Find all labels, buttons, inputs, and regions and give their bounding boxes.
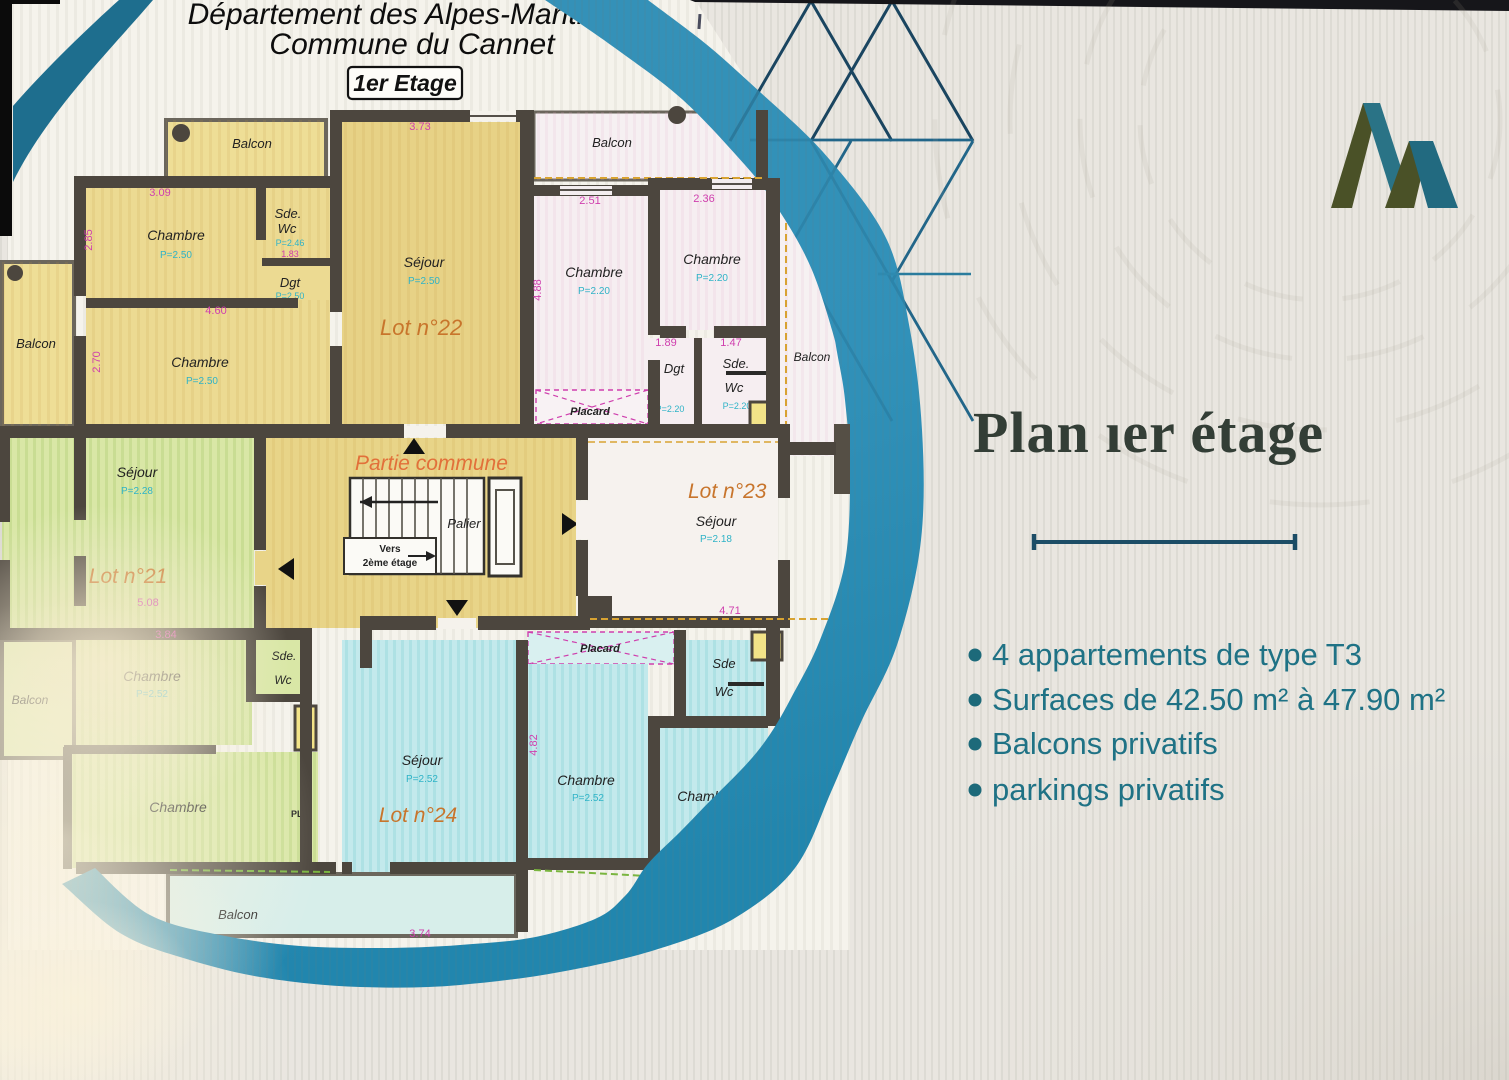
svg-text:Balcon: Balcon: [794, 350, 831, 364]
svg-text:Placard: Placard: [580, 643, 620, 655]
svg-text:Plan ıer étage: Plan ıer étage: [973, 400, 1324, 465]
svg-text:3.09: 3.09: [149, 187, 170, 199]
svg-text:Chambre: Chambre: [147, 227, 205, 243]
svg-text:Balcon: Balcon: [232, 136, 272, 151]
svg-text:P=2.46: P=2.46: [276, 238, 305, 248]
svg-text:Séjour: Séjour: [402, 752, 444, 768]
svg-text:Vers: Vers: [379, 544, 401, 555]
svg-text:P=2.50: P=2.50: [186, 376, 218, 387]
svg-text:P=2.20: P=2.20: [696, 273, 728, 284]
svg-text:Chambre: Chambre: [683, 251, 741, 267]
svg-text:P=2.20: P=2.20: [578, 286, 610, 297]
svg-text:1er Etage: 1er Etage: [353, 70, 457, 96]
svg-text:Dgt: Dgt: [280, 275, 302, 290]
svg-text:P=2.20: P=2.20: [723, 401, 752, 411]
svg-text:Département des Alpes-Maritim: Département des Alpes-Maritim: [188, 0, 609, 31]
svg-text:2.51: 2.51: [579, 195, 600, 207]
svg-text:Balcon: Balcon: [16, 336, 56, 351]
svg-text:parkings privatifs: parkings privatifs: [992, 772, 1225, 807]
svg-text:P=2.28: P=2.28: [121, 486, 153, 497]
svg-text:P=2.18: P=2.18: [700, 534, 732, 545]
svg-text:Lot n°23: Lot n°23: [688, 480, 767, 503]
svg-text:Sde.: Sde.: [275, 206, 302, 221]
svg-text:Séjour: Séjour: [117, 464, 159, 480]
svg-text:Balcons privatifs: Balcons privatifs: [992, 726, 1218, 761]
svg-text:P=2.50: P=2.50: [160, 250, 192, 261]
svg-text:3.73: 3.73: [409, 121, 430, 133]
svg-text:Surfaces de 42.50 m² à 47.90 m: Surfaces de 42.50 m² à 47.90 m²: [992, 682, 1445, 717]
svg-text:Wc: Wc: [715, 684, 734, 699]
svg-text:Sde: Sde: [712, 656, 735, 671]
svg-text:Lot n°24: Lot n°24: [379, 804, 457, 827]
svg-text:Partie commune: Partie commune: [355, 452, 508, 475]
svg-text:Wc: Wc: [278, 221, 297, 236]
svg-text:Chambre: Chambre: [565, 264, 623, 280]
svg-text:Chambre: Chambre: [171, 354, 229, 370]
svg-text:1.89: 1.89: [655, 337, 676, 349]
svg-text:P=2.52: P=2.52: [406, 774, 438, 785]
svg-text:Placard: Placard: [570, 406, 610, 418]
svg-text:P=2.52: P=2.52: [572, 793, 604, 804]
svg-text:1.47: 1.47: [720, 337, 741, 349]
svg-text:Chambre: Chambre: [557, 772, 615, 788]
svg-text:4.88: 4.88: [532, 279, 544, 300]
svg-text:Lot n°22: Lot n°22: [380, 315, 462, 340]
svg-text:Séjour: Séjour: [404, 254, 446, 270]
svg-text:2.36: 2.36: [693, 193, 714, 205]
svg-text:P=2.50: P=2.50: [408, 276, 440, 287]
svg-text:2ème étage: 2ème étage: [363, 558, 418, 569]
svg-text:Sde.: Sde.: [723, 356, 750, 371]
svg-text:3.74: 3.74: [409, 928, 430, 940]
svg-text:4.71: 4.71: [719, 605, 740, 617]
svg-text:Balcon: Balcon: [592, 135, 632, 150]
svg-text:Wc: Wc: [725, 380, 744, 395]
svg-text:Séjour: Séjour: [696, 513, 738, 529]
svg-text:4.60: 4.60: [205, 305, 226, 317]
svg-text:Dgt: Dgt: [664, 361, 686, 376]
svg-text:Commune du Cannet: Commune du Cannet: [269, 28, 556, 61]
svg-text:4.82: 4.82: [528, 734, 540, 755]
svg-text:Palier: Palier: [447, 516, 481, 531]
svg-text:1.83: 1.83: [281, 249, 299, 259]
svg-text:2.70: 2.70: [91, 351, 103, 372]
svg-text:4 appartements de type T3: 4 appartements de type T3: [992, 637, 1362, 672]
svg-text:2.85: 2.85: [83, 229, 95, 250]
